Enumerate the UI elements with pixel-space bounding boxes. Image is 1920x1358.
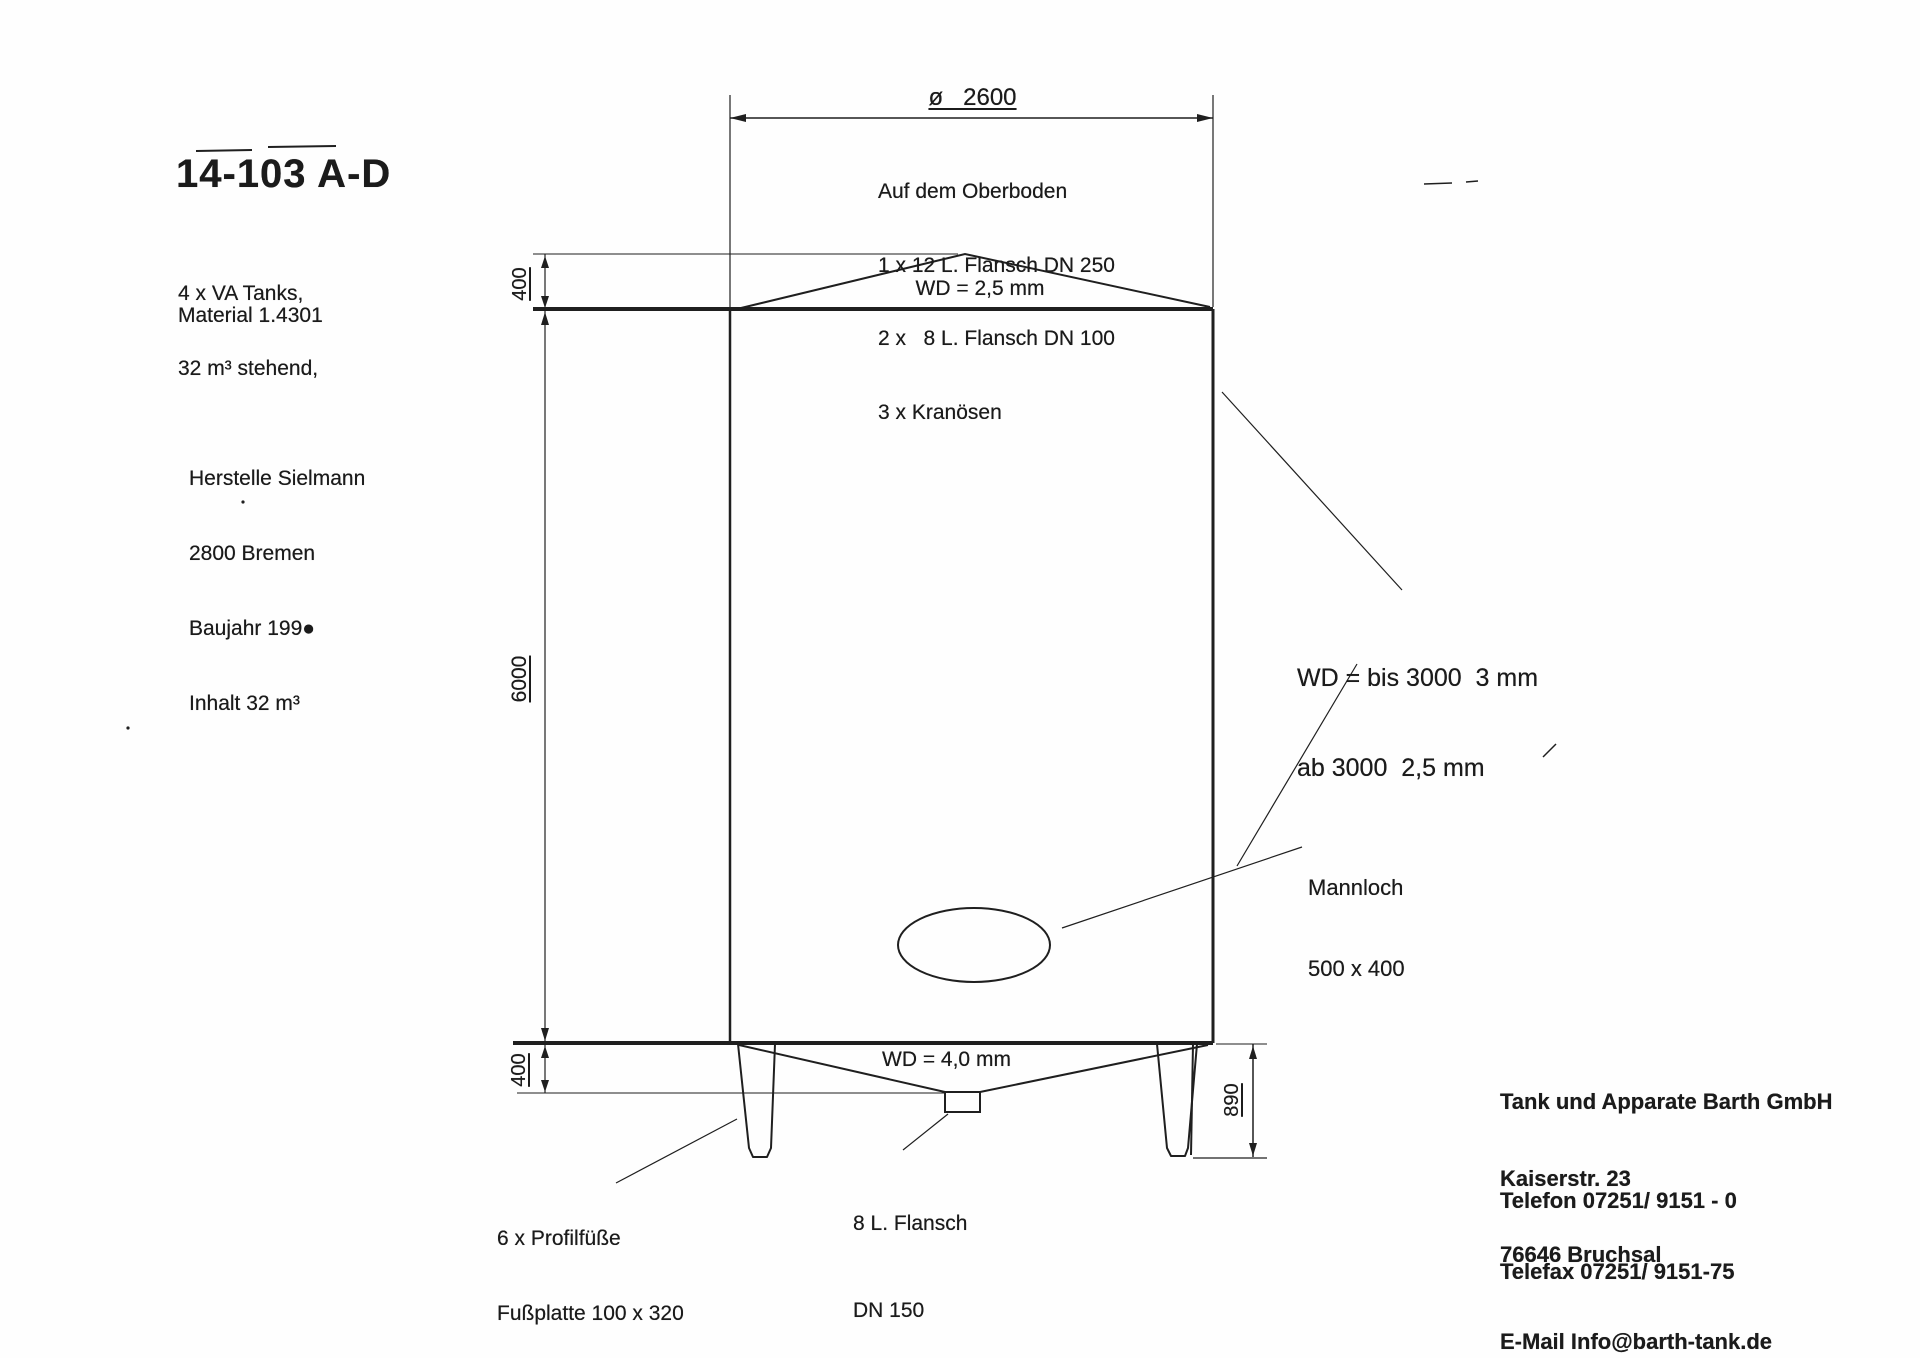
shell-wall-note-line: ab 3000 2,5 mm bbox=[1297, 753, 1538, 783]
arrowhead-up bbox=[1249, 1046, 1257, 1059]
manufacturer-line: Inhalt 32 m³ bbox=[189, 691, 365, 716]
left-leg bbox=[738, 1044, 775, 1157]
company-contact-line: E-Mail Info@barth-tank.de bbox=[1500, 1330, 1772, 1354]
bottom-cone-right-slope bbox=[980, 1045, 1208, 1092]
foot-height-label: 890 bbox=[1220, 1060, 1244, 1140]
tank-spec-line: 32 m³ stehend, bbox=[178, 356, 318, 381]
company-address-line: Tank und Apparate Barth GmbH bbox=[1500, 1089, 1832, 1115]
bottom-flange-note-line: DN 150 bbox=[853, 1296, 967, 1325]
top-note-line: Auf dem Oberboden bbox=[878, 180, 1115, 205]
bottom-cone-dimension bbox=[517, 1044, 945, 1093]
top-cone-wall-thickness-label: WD = 2,5 mm bbox=[905, 277, 1055, 301]
diameter-dimension-label: ø 2600 bbox=[900, 84, 1045, 112]
top-note-line: 1 x 12 L. Flansch DN 250 bbox=[878, 254, 1115, 279]
manufacturer-line: Herstelle Sielmann bbox=[189, 466, 365, 491]
manufacturer-line: Baujahr 199● bbox=[189, 616, 365, 641]
shell-height-dimension bbox=[541, 310, 549, 1042]
top-note-line: 3 x Kranösen bbox=[878, 401, 1115, 426]
manhole-leader-line bbox=[1062, 847, 1302, 928]
shell-wall-leader-upper bbox=[1222, 392, 1402, 590]
right-leg-front-edge bbox=[1191, 1044, 1193, 1155]
arrowhead-down bbox=[541, 1080, 549, 1092]
bottom-flange-note: 8 L. Flansch DN 150 bbox=[853, 1151, 967, 1358]
material-note: Material 1.4301 bbox=[178, 304, 323, 328]
bottom-flange-note-line: 8 L. Flansch bbox=[853, 1209, 967, 1238]
shell-wall-note-line: WD = bis 3000 3 mm bbox=[1297, 663, 1538, 693]
artifact-dot-1 bbox=[126, 726, 129, 729]
company-contact-line: Telefon 07251/ 9151 - 0 bbox=[1500, 1189, 1772, 1213]
company-contact-block: Telefon 07251/ 9151 - 0 Telefax 07251/ 9… bbox=[1500, 1142, 1772, 1358]
manufacturer-line: 2800 Bremen bbox=[189, 541, 365, 566]
manhole-ellipse bbox=[898, 908, 1050, 982]
artifact-dash-3 bbox=[1543, 744, 1556, 757]
feet-leader-line bbox=[616, 1119, 737, 1183]
top-note-line: 2 x 8 L. Flansch DN 100 bbox=[878, 327, 1115, 352]
company-contact-line: Telefax 07251/ 9151-75 bbox=[1500, 1260, 1772, 1284]
artifact-dash-2 bbox=[1466, 181, 1478, 182]
arrowhead-down bbox=[1249, 1143, 1257, 1156]
manhole-note-line: 500 x 400 bbox=[1308, 955, 1405, 982]
feet-note-line: Fußplatte 100 x 320 bbox=[497, 1301, 684, 1326]
arrowhead-up bbox=[541, 312, 549, 325]
tank-spec-line: 4 x VA Tanks, bbox=[178, 281, 318, 306]
manufacturer-block: Herstelle Sielmann 2800 Bremen Baujahr 1… bbox=[189, 416, 365, 766]
bottom-flange-leader-line bbox=[903, 1114, 948, 1150]
arrowhead-up bbox=[541, 256, 549, 268]
feet-note: 6 x Profilfüße Fußplatte 100 x 320 bbox=[497, 1176, 684, 1358]
top-nozzle-note: Auf dem Oberboden 1 x 12 L. Flansch DN 2… bbox=[878, 131, 1115, 474]
bottom-cone-height-label: 400 bbox=[507, 1030, 531, 1110]
shell-height-label: 6000 bbox=[508, 639, 532, 719]
arrowhead-up bbox=[541, 1046, 549, 1058]
manhole-note: Mannloch 500 x 400 bbox=[1308, 820, 1405, 1036]
manhole-note-line: Mannloch bbox=[1308, 874, 1405, 901]
artifact-overline-1 bbox=[196, 150, 252, 151]
artifact-dash-1 bbox=[1424, 183, 1452, 184]
technical-drawing-page: 14-103 A-D 4 x VA Tanks, 32 m³ stehend, … bbox=[0, 0, 1920, 1358]
drawing-number: 14-103 A-D bbox=[176, 152, 391, 197]
shell-wall-thickness-note: WD = bis 3000 3 mm ab 3000 2,5 mm bbox=[1297, 603, 1538, 843]
arrowhead-down bbox=[541, 296, 549, 308]
feet-note-line: 6 x Profilfüße bbox=[497, 1226, 684, 1251]
arrowhead-left bbox=[730, 114, 746, 122]
bottom-flange-nozzle bbox=[945, 1092, 980, 1112]
arrowhead-right bbox=[1197, 114, 1213, 122]
arrowhead-down bbox=[541, 1028, 549, 1041]
bottom-cone-wall-thickness-label: WD = 4,0 mm bbox=[882, 1048, 1011, 1072]
artifact-overline-2 bbox=[268, 146, 336, 147]
top-cone-height-label: 400 bbox=[508, 244, 532, 324]
tank-spec-block: 4 x VA Tanks, 32 m³ stehend, bbox=[178, 231, 318, 431]
